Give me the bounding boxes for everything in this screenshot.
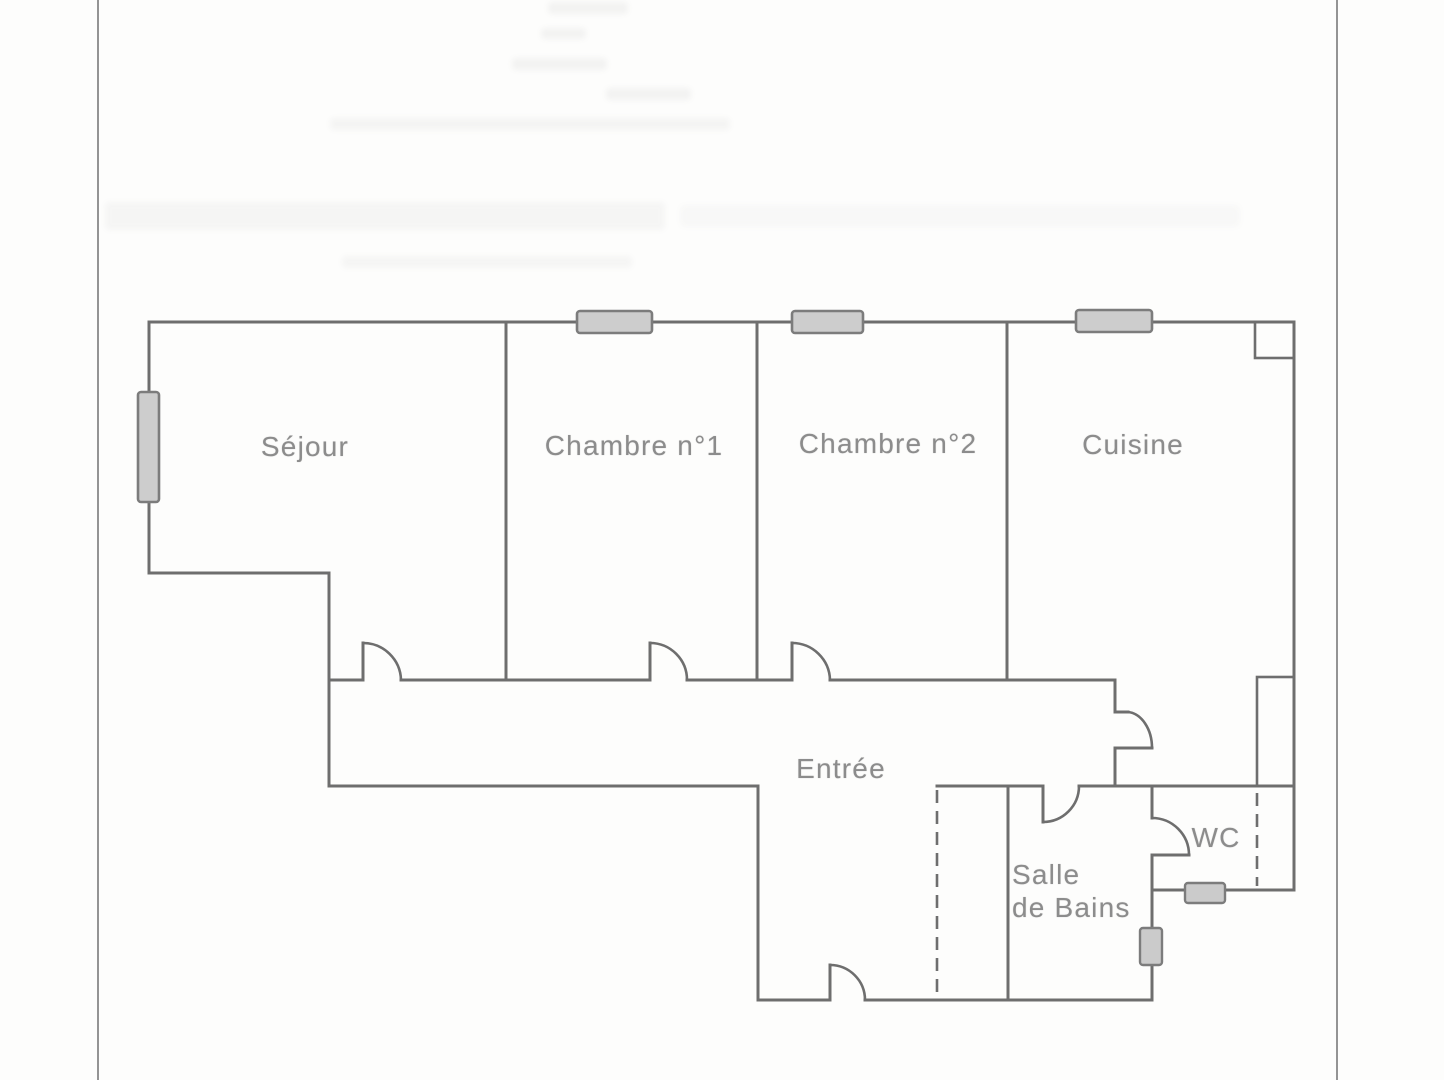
corridor-top-wall — [329, 680, 1152, 786]
duct-hatch-top-right — [1255, 322, 1294, 358]
room-label-cuisine: Cuisine — [1082, 429, 1184, 461]
room-divider-walls — [506, 322, 1007, 680]
outer-walls — [149, 322, 1294, 890]
sejour-window — [138, 392, 159, 502]
windows — [138, 310, 1152, 502]
door-arcs — [363, 643, 1189, 1000]
door-leaves — [363, 643, 1043, 1000]
chambre2-door-arc — [792, 643, 830, 680]
salle-de-bains-door-arc — [1043, 786, 1079, 822]
room-label-entree: Entrée — [796, 753, 886, 785]
entree-main-door-arc — [830, 965, 865, 1000]
floor-plan-drawing — [0, 0, 1444, 1080]
wc-door-arc — [1152, 818, 1189, 855]
scanned-floor-plan-page: Séjour Chambre n°1 Chambre n°2 Cuisine E… — [0, 0, 1444, 1080]
cuisine-entry-door-arc — [1128, 712, 1152, 748]
wc-radiator — [1185, 883, 1225, 903]
room-label-chambre1: Chambre n°1 — [545, 430, 723, 462]
room-label-salle-de-bains-line2: de Bains — [1012, 891, 1131, 924]
duct-shafts — [1255, 322, 1294, 786]
room-label-sejour: Séjour — [261, 431, 349, 463]
duct-hatch-mid-right — [1257, 677, 1294, 786]
room-label-chambre2: Chambre n°2 — [799, 428, 977, 460]
chambre1-window — [577, 311, 652, 333]
chambre1-door-arc — [650, 643, 687, 680]
salle-de-bains-radiator — [1140, 928, 1162, 965]
sejour-door-arc — [363, 643, 401, 680]
room-label-salle-de-bains-line1: Salle — [1012, 858, 1131, 891]
chambre2-window — [792, 311, 863, 333]
room-label-salle-de-bains: Salle de Bains — [1012, 858, 1131, 924]
cuisine-window — [1076, 310, 1152, 332]
room-label-wc: WC — [1191, 822, 1240, 854]
